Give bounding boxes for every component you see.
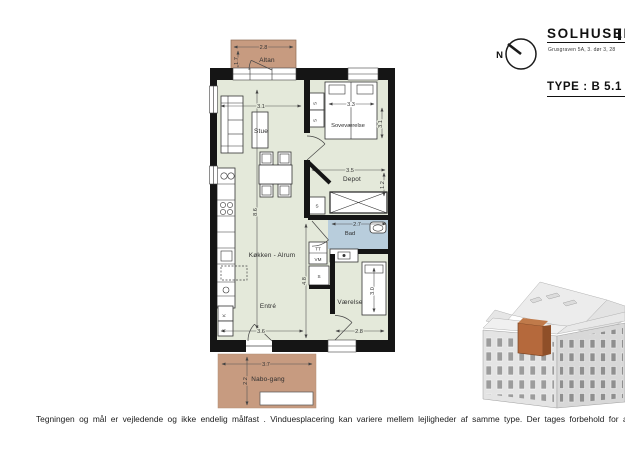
closet-k2 [218,321,233,336]
type-underline [547,96,625,97]
label-altan: Altan [259,57,275,64]
dim-hall-h: 4.8 [302,277,308,285]
label-entre: Entré [260,303,277,310]
label-s1: S [313,102,318,105]
closet-s2 [309,110,324,127]
label-vm: VM [315,257,322,262]
label-sovevaerelse: Soveværelse [331,123,365,129]
dim-depot-w: 3.5 [346,168,354,174]
dim-altan-d: 1.7 [234,57,240,65]
disclaimer-text: Tegningen og mål er vejledende og ikke e… [36,414,625,424]
label-stue: Stue [254,128,268,135]
highlighted-unit [518,323,543,356]
building-render [483,282,625,408]
dim-alrum-h: 8.6 [253,208,259,216]
compass: N [496,39,536,69]
address-line: Grusgraven 5A, 3. dør 3, 28 [548,47,615,53]
dim-vaerelse-bed-h: 3.0 [370,287,376,295]
dim-stue-w: 3.1 [257,104,265,110]
page-title: SOLHUSENE [547,26,625,41]
label-s4: S [317,274,320,279]
label-vaerelse: Værelse [337,299,362,306]
dim-vaerelse-w: 2.8 [355,329,363,335]
highlighted-unit-side [543,325,551,356]
dining-table [259,165,292,184]
title-underline [547,42,625,43]
label-bad: Bad [345,231,355,237]
label-s3: S [315,204,318,209]
corridor-box [260,392,313,405]
closet-s1 [309,93,324,110]
floorplan-sheet: Altan Stue Soveværelse Depot Bad Køkken … [0,0,625,460]
label-depot: Depot [343,176,361,183]
closet-k1 [218,306,233,321]
type-label: TYPE : B 5.1 [547,81,622,93]
label-nabo-gang: Nabo-gang [251,376,285,383]
compass-needle-icon [508,44,521,54]
compass-n-label: N [496,50,503,61]
dim-depot-h: 1.2 [380,181,386,189]
label-s2: S [313,119,318,122]
windows-right [560,328,623,404]
double-bed [325,82,377,139]
dim-sove-h: 3.1 [378,120,384,128]
sofa [221,96,243,153]
storage-x-box [330,192,387,213]
label-koekken-alrum: Køkken - Alrum [249,252,295,259]
dim-altan-w: 2.8 [260,45,268,51]
dim-nabo-w: 3.7 [262,362,270,368]
dim-nabo-d: 2.2 [243,377,249,385]
dim-bad-w: 2.7 [353,222,361,228]
dim-sove-w: 3.3 [347,102,355,108]
title-fragment-glyph [618,29,621,40]
dim-entre-w: 3.6 [257,329,265,335]
label-tt: TT [315,247,321,252]
